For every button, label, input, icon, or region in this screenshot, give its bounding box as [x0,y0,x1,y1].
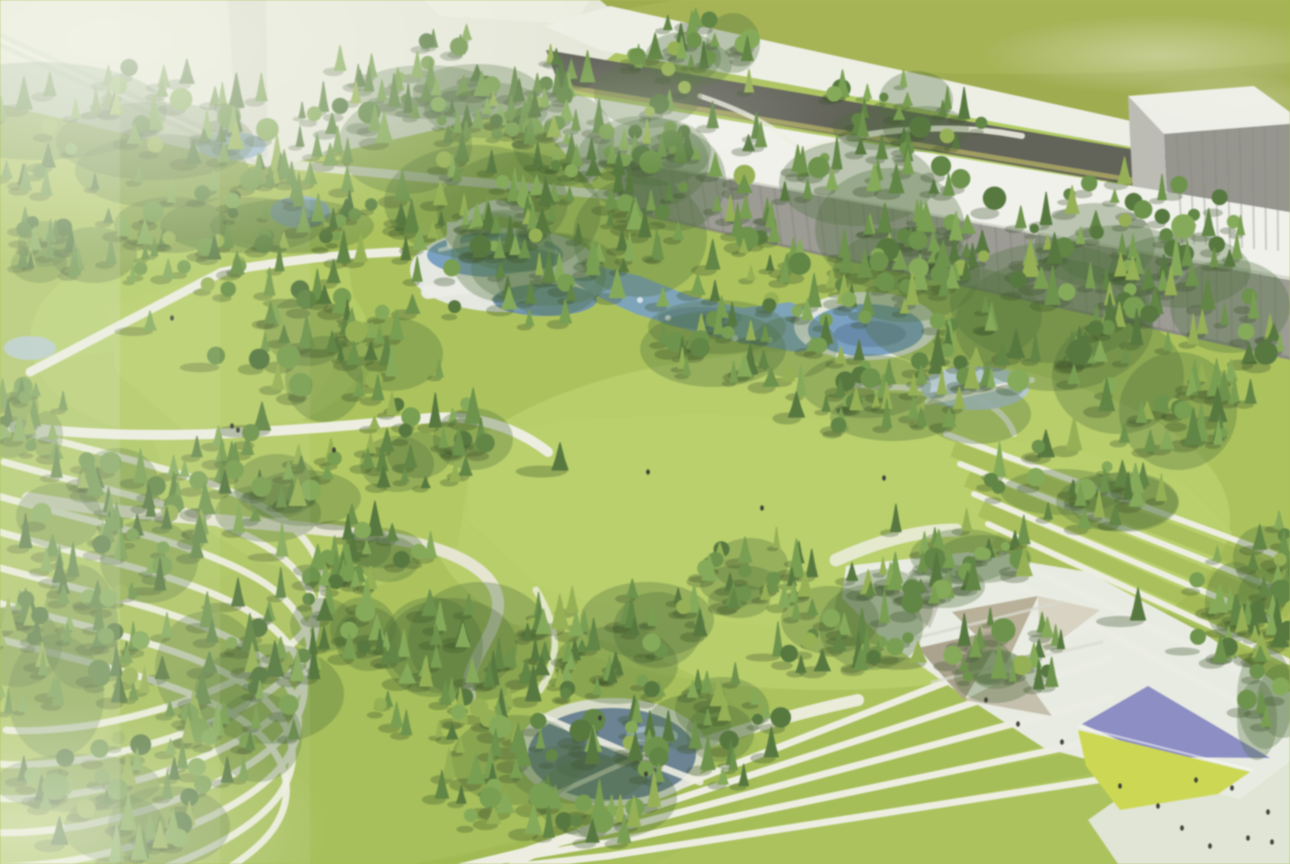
park-aerial-rendering [0,0,1290,864]
haze-top-center [440,50,840,170]
park-aerial-svg [0,0,1290,864]
